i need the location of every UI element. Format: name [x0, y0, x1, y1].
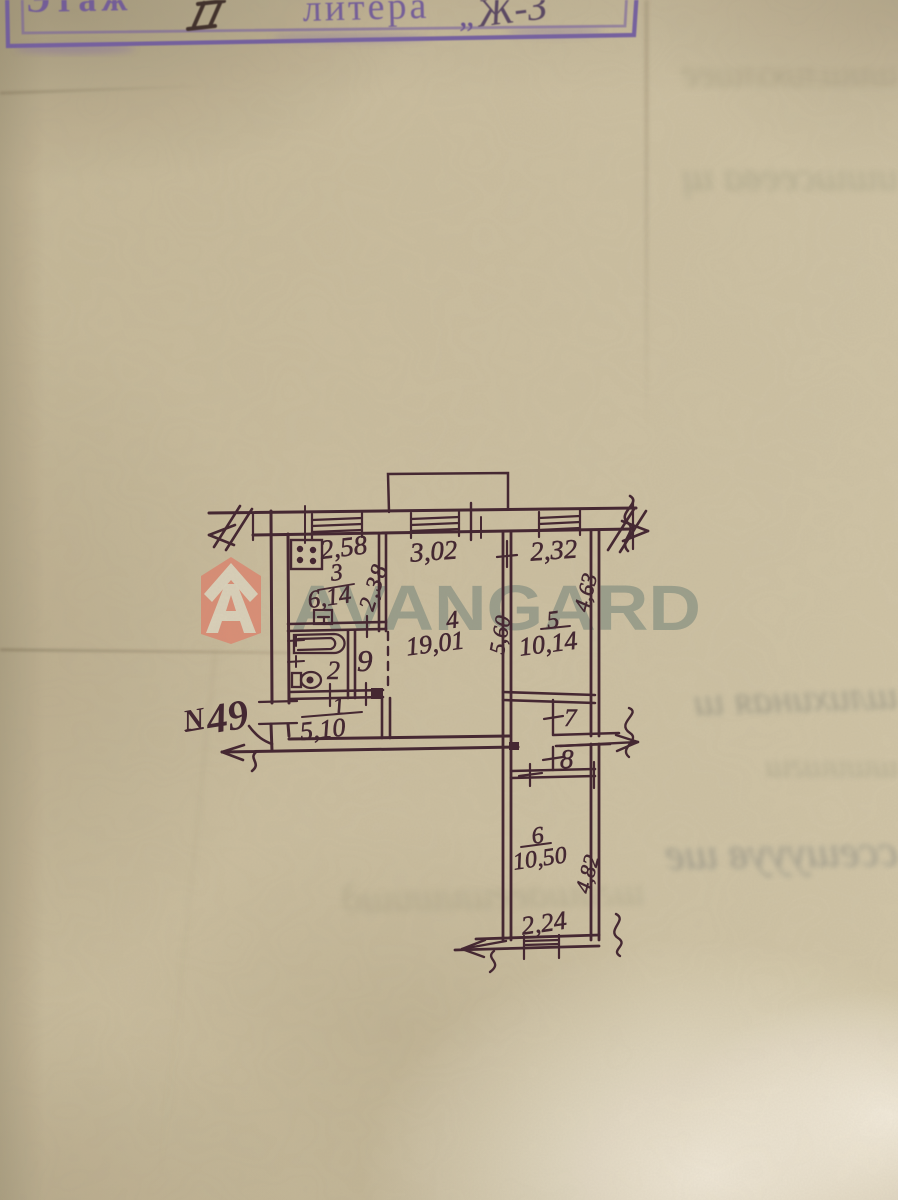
svg-text:10,14: 10,14 — [517, 626, 579, 662]
svg-text:10,50: 10,50 — [511, 842, 568, 875]
svg-text:49: 49 — [202, 692, 252, 744]
svg-text:2,32: 2,32 — [529, 533, 578, 566]
svg-text:3,02: 3,02 — [408, 534, 458, 567]
svg-text:2: 2 — [327, 656, 340, 685]
svg-text:2,58: 2,58 — [318, 529, 369, 565]
svg-text:9: 9 — [357, 643, 373, 678]
svg-text:19,01: 19,01 — [404, 626, 466, 662]
svg-text:7: 7 — [564, 705, 578, 732]
svg-text:4,63: 4,63 — [569, 571, 603, 614]
